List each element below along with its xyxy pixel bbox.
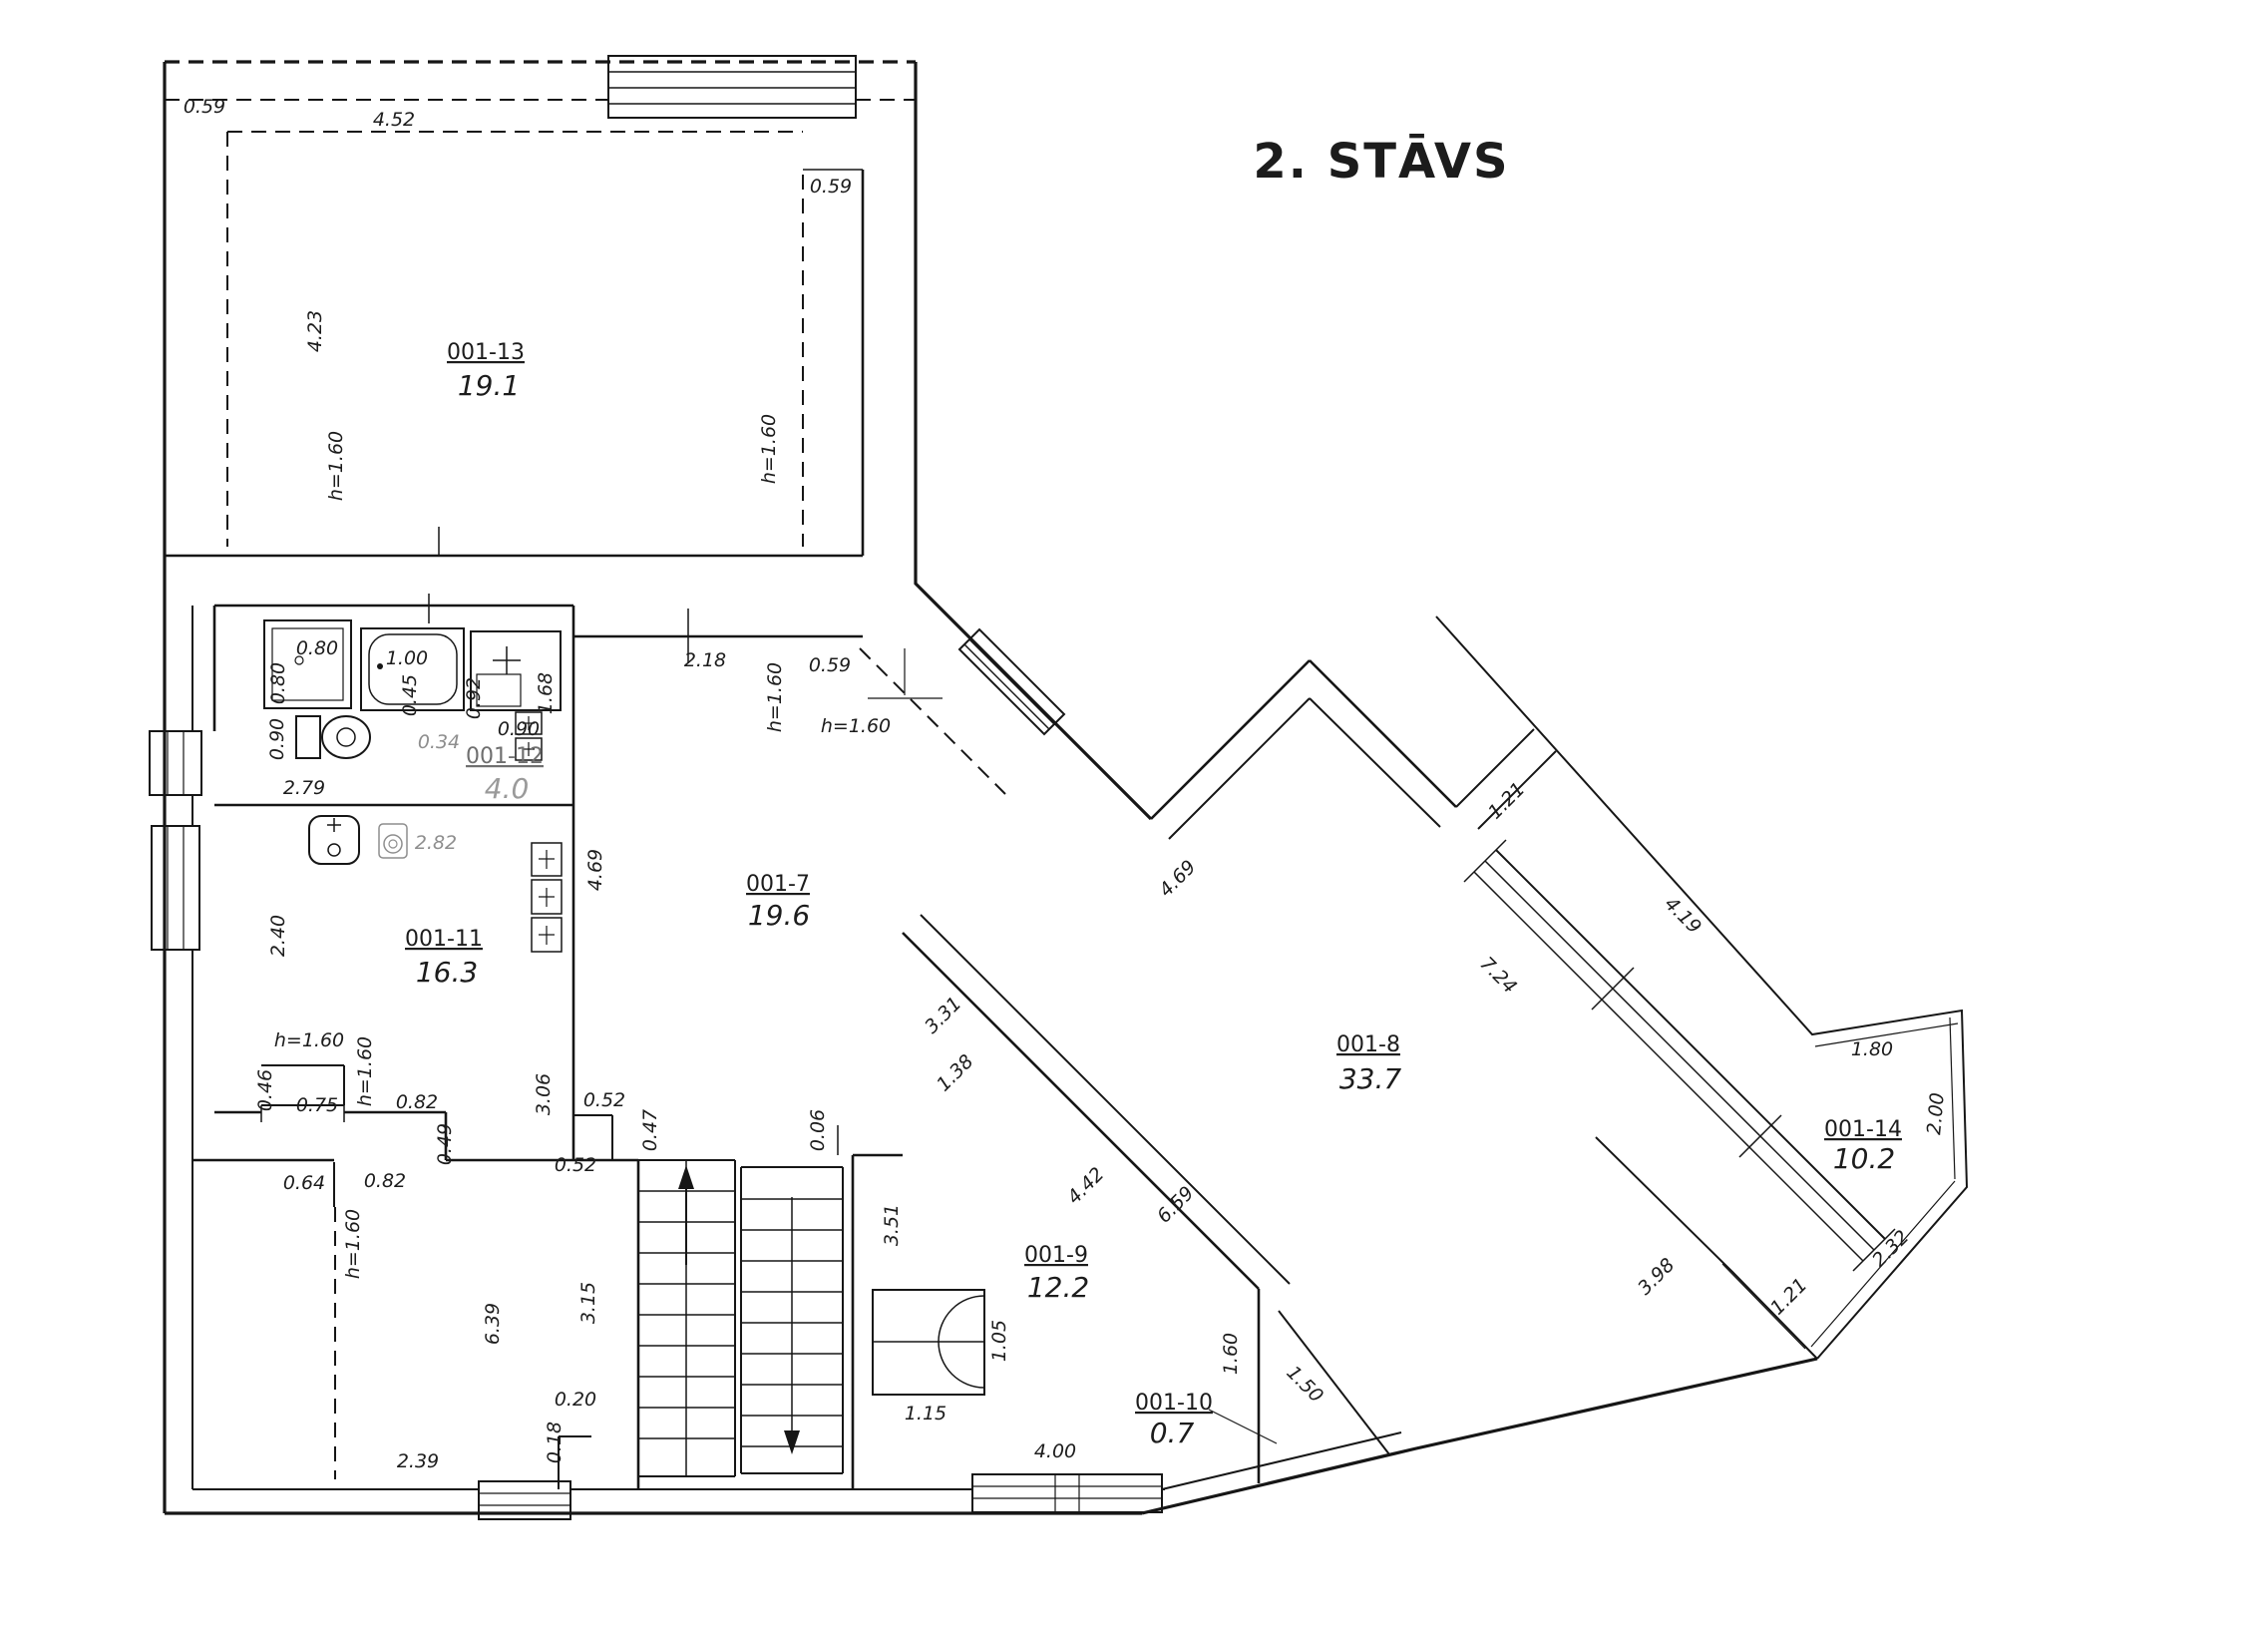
room-8-area: 33.7: [1339, 1062, 1402, 1095]
dim: 0.06: [807, 1109, 829, 1151]
dim: 1.38: [933, 1050, 977, 1095]
room-9-area: 12.2: [1027, 1271, 1089, 1304]
dim: h=1.60: [764, 662, 786, 732]
dim: 4.52: [373, 109, 415, 131]
dim: h=1.60: [274, 1029, 344, 1051]
page-title: 2. STĀVS: [1253, 134, 1509, 190]
dim: 0.59: [810, 176, 852, 198]
dim: 0.46: [254, 1069, 276, 1111]
window-left-icons: [150, 731, 201, 950]
dim: 0.18: [544, 1422, 566, 1463]
dim: 4.19: [1661, 893, 1705, 938]
room-11-id: 001-11: [405, 927, 483, 952]
dim: 0.90: [266, 718, 288, 760]
diagonal-window-icon: [959, 629, 1064, 734]
room-8-id: 001-8: [1336, 1032, 1400, 1057]
dim: 1.60: [1220, 1333, 1242, 1375]
dim: h=1.60: [354, 1036, 376, 1106]
dim: 3.98: [1634, 1254, 1679, 1299]
stairs-down-arrow: [784, 1430, 800, 1454]
dim: h=1.60: [342, 1209, 364, 1279]
room-14-area: 10.2: [1833, 1142, 1895, 1175]
dim: 1.50: [1283, 1362, 1327, 1407]
floor-plan-drawing: 2. STĀVS 001-13 19.1 001-12 4.0 001-11 1…: [0, 0, 2268, 1629]
dim: 0.82: [396, 1091, 438, 1113]
dim: 1.68: [535, 672, 557, 714]
dim: 3.06: [533, 1073, 555, 1115]
dim: 2.82: [415, 832, 457, 854]
dim: 0.75: [296, 1094, 338, 1116]
dim: 0.52: [555, 1154, 596, 1176]
room-9-walls: [573, 1115, 984, 1395]
toilet-icon: [296, 716, 370, 758]
room-11-area: 16.3: [416, 956, 478, 989]
boiler-icon: [379, 824, 407, 858]
dim: 0.64: [283, 1172, 325, 1194]
dim: 0.90: [498, 718, 540, 740]
dim: 0.82: [364, 1170, 406, 1192]
dim: 2.39: [397, 1450, 439, 1472]
dim: 0.45: [399, 674, 421, 716]
dim: 0.59: [809, 654, 851, 676]
dim: 3.51: [881, 1204, 903, 1246]
dim: 1.80: [1851, 1038, 1893, 1060]
dim: 0.80: [296, 637, 338, 659]
dim: 2.79: [283, 777, 325, 799]
room-12-id: 001-12: [466, 744, 544, 769]
dim: 0.59: [184, 96, 225, 118]
diagonal-wall-8-9: [903, 915, 1290, 1289]
dim: h=1.60: [325, 431, 347, 501]
dim: 1.15: [905, 1403, 946, 1425]
room-10-area: 0.7: [1150, 1417, 1195, 1449]
dim: 4.69: [1155, 856, 1200, 901]
dim: 7.24: [1476, 953, 1521, 998]
dim: 1.00: [386, 647, 428, 669]
room-13-area: 19.1: [458, 369, 520, 402]
outer-walls: [165, 62, 1817, 1513]
dim: 0.52: [583, 1089, 625, 1111]
dim: 3.31: [921, 993, 965, 1037]
dim: 0.92: [463, 677, 485, 719]
room-13-id: 001-13: [447, 340, 525, 365]
room-10-id: 001-10: [1135, 1391, 1213, 1416]
dim: 0.34: [418, 731, 460, 753]
bottom-left-room-walls: [192, 1160, 638, 1489]
dim: 2.18: [684, 649, 726, 671]
room-7-id: 001-7: [746, 872, 810, 897]
dim: 2.32: [1868, 1226, 1913, 1271]
room-14-id: 001-14: [1824, 1117, 1902, 1142]
dim: 4.23: [304, 310, 326, 352]
dim: 0.47: [639, 1109, 661, 1151]
stairs: [638, 1155, 903, 1489]
room-12-area: 4.0: [485, 772, 530, 805]
dim: 3.15: [577, 1282, 599, 1324]
room-7-area: 19.6: [748, 899, 810, 932]
dim: h=1.60: [821, 715, 891, 737]
dim: h=1.60: [758, 414, 780, 484]
dim: 6.39: [482, 1303, 504, 1345]
dim: 0.20: [555, 1389, 596, 1411]
dim: 4.42: [1063, 1163, 1108, 1208]
sink-room11-icon: [309, 816, 359, 864]
floor-plan-page: { "title": { "text": "2. STĀVS", "color"…: [0, 0, 2268, 1629]
dim: 2.00: [1923, 1091, 1949, 1135]
window-top-icon: [608, 56, 856, 118]
dim: 4.69: [584, 849, 606, 891]
dim: 0.80: [267, 662, 289, 704]
room-9-id: 001-9: [1024, 1243, 1088, 1268]
dim: 0.49: [434, 1123, 456, 1165]
dim: 2.40: [267, 915, 289, 957]
dim: 1.05: [988, 1320, 1010, 1362]
dim: 4.00: [1034, 1440, 1076, 1462]
